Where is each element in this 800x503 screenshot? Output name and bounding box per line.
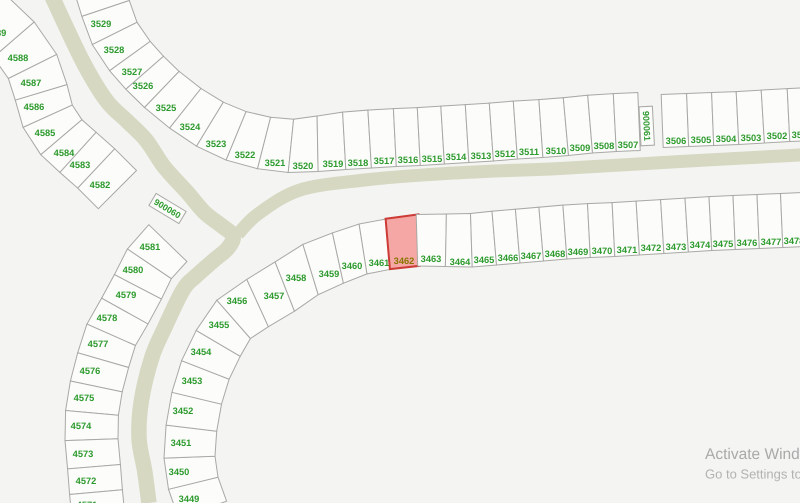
svg-text:4574: 4574 bbox=[71, 421, 93, 431]
svg-text:3508: 3508 bbox=[594, 141, 615, 151]
svg-text:3450: 3450 bbox=[169, 467, 190, 477]
svg-text:3503: 3503 bbox=[741, 133, 762, 143]
svg-text:Go to Settings to activate Win: Go to Settings to activate Windows. bbox=[705, 467, 800, 482]
svg-text:3511: 3511 bbox=[519, 147, 539, 157]
svg-text:3453: 3453 bbox=[182, 376, 203, 386]
svg-text:4586: 4586 bbox=[24, 102, 45, 112]
svg-text:3473: 3473 bbox=[666, 242, 687, 252]
svg-text:3509: 3509 bbox=[570, 143, 591, 153]
svg-text:3517: 3517 bbox=[374, 156, 395, 166]
svg-text:900061: 900061 bbox=[641, 111, 653, 142]
svg-text:3476: 3476 bbox=[737, 238, 758, 248]
svg-text:3461: 3461 bbox=[369, 258, 390, 268]
svg-text:3513: 3513 bbox=[471, 151, 492, 161]
svg-text:4576: 4576 bbox=[80, 366, 101, 376]
svg-text:3514: 3514 bbox=[446, 152, 468, 162]
svg-text:3475: 3475 bbox=[713, 239, 734, 249]
svg-text:3464: 3464 bbox=[450, 257, 472, 267]
svg-text:3449: 3449 bbox=[179, 494, 200, 503]
svg-text:3472: 3472 bbox=[641, 243, 662, 253]
svg-text:4578: 4578 bbox=[97, 313, 118, 323]
svg-text:3507: 3507 bbox=[618, 140, 639, 150]
svg-text:3460: 3460 bbox=[342, 261, 363, 271]
svg-text:3451: 3451 bbox=[171, 438, 192, 448]
svg-text:4584: 4584 bbox=[54, 148, 76, 158]
svg-text:3470: 3470 bbox=[592, 246, 613, 256]
svg-text:3519: 3519 bbox=[323, 159, 344, 169]
svg-text:3454: 3454 bbox=[191, 347, 213, 357]
svg-text:3504: 3504 bbox=[716, 134, 738, 144]
svg-text:3510: 3510 bbox=[546, 146, 567, 156]
svg-text:3469: 3469 bbox=[568, 247, 589, 257]
svg-text:4587: 4587 bbox=[21, 78, 42, 88]
svg-text:4588: 4588 bbox=[8, 53, 29, 63]
svg-text:4583: 4583 bbox=[70, 160, 91, 170]
svg-text:3477: 3477 bbox=[761, 237, 782, 247]
svg-text:3516: 3516 bbox=[398, 155, 419, 165]
svg-text:3526: 3526 bbox=[133, 81, 154, 91]
svg-text:4580: 4580 bbox=[123, 265, 144, 275]
svg-text:3523: 3523 bbox=[206, 139, 227, 149]
svg-text:3478: 3478 bbox=[784, 236, 800, 246]
svg-text:3505: 3505 bbox=[691, 135, 712, 145]
svg-text:3528: 3528 bbox=[104, 45, 125, 55]
svg-text:3502: 3502 bbox=[767, 131, 788, 141]
svg-text:3456: 3456 bbox=[227, 296, 248, 306]
svg-text:4577: 4577 bbox=[88, 339, 109, 349]
svg-text:3527: 3527 bbox=[122, 67, 143, 77]
svg-text:3465: 3465 bbox=[474, 255, 495, 265]
svg-text:3506: 3506 bbox=[666, 136, 687, 146]
svg-text:4572: 4572 bbox=[76, 476, 97, 486]
svg-text:3462: 3462 bbox=[394, 256, 415, 266]
svg-text:3458: 3458 bbox=[286, 273, 307, 283]
svg-text:4575: 4575 bbox=[74, 393, 95, 403]
svg-text:3512: 3512 bbox=[495, 149, 516, 159]
svg-text:3521: 3521 bbox=[265, 158, 286, 168]
svg-text:3466: 3466 bbox=[498, 253, 519, 263]
svg-text:3524: 3524 bbox=[180, 122, 202, 132]
svg-text:3525: 3525 bbox=[156, 103, 177, 113]
svg-text:4589: 4589 bbox=[0, 28, 6, 38]
svg-text:3459: 3459 bbox=[319, 269, 340, 279]
svg-text:4581: 4581 bbox=[140, 242, 161, 252]
svg-text:4573: 4573 bbox=[73, 449, 94, 459]
svg-text:3501: 3501 bbox=[792, 130, 800, 140]
svg-text:4579: 4579 bbox=[116, 290, 137, 300]
svg-text:3518: 3518 bbox=[348, 158, 369, 168]
svg-text:3522: 3522 bbox=[235, 150, 256, 160]
svg-text:3520: 3520 bbox=[293, 161, 314, 171]
svg-text:4585: 4585 bbox=[35, 128, 56, 138]
svg-text:3467: 3467 bbox=[521, 251, 542, 261]
svg-text:3452: 3452 bbox=[173, 406, 194, 416]
svg-text:3515: 3515 bbox=[422, 154, 443, 164]
svg-text:3457: 3457 bbox=[264, 291, 285, 301]
svg-text:3463: 3463 bbox=[421, 254, 442, 264]
svg-text:3455: 3455 bbox=[209, 320, 230, 330]
svg-text:3529: 3529 bbox=[91, 19, 112, 29]
svg-text:4582: 4582 bbox=[90, 180, 111, 190]
svg-text:Activate Windows: Activate Windows bbox=[705, 446, 800, 463]
svg-text:3468: 3468 bbox=[545, 249, 566, 259]
svg-text:3474: 3474 bbox=[690, 240, 712, 250]
svg-text:3471: 3471 bbox=[617, 245, 638, 255]
